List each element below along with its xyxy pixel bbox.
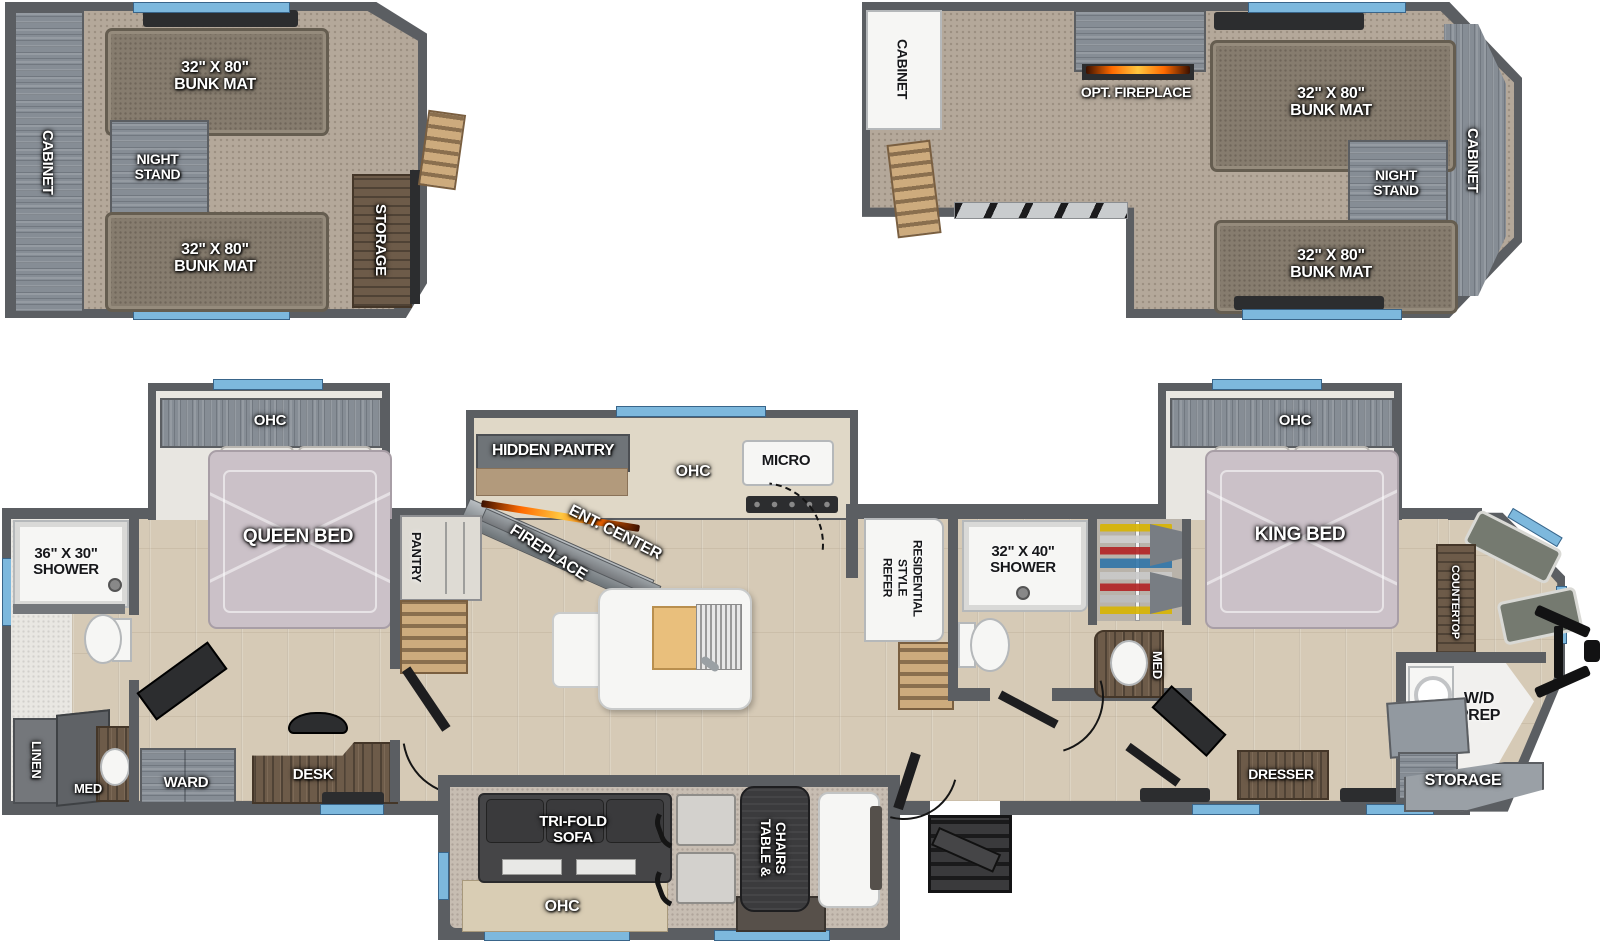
loft-right-fireplace-glow — [1086, 66, 1190, 74]
tri-fold-sofa-label: TRI-FOLD SOFA — [510, 808, 636, 852]
entry-steps — [928, 815, 1012, 893]
loft-right-opt-fireplace-label: OPT. FIREPLACE — [1046, 80, 1226, 104]
living-ohc-label: OHC — [512, 894, 612, 920]
bedroom2-window-1 — [1192, 804, 1260, 815]
loft-right-fireplace-cabinet — [1074, 10, 1206, 72]
wall-bath1-bed1 — [129, 519, 139, 615]
king-bed-label: KING BED — [1225, 520, 1375, 550]
loft-left-bunk-top-label: 32" X 80" BUNK MAT — [120, 42, 310, 112]
stairs-left — [400, 600, 468, 674]
bath1-med-label: MED — [62, 778, 114, 800]
closet-wall-left — [1088, 519, 1097, 625]
loft-right: CABINET CABINET OPT. FIREPLACE 32" X 80"… — [856, 2, 1536, 320]
wall-stub-refer — [846, 504, 858, 578]
loft-left-door-edge — [410, 170, 420, 304]
wd-counter — [1386, 697, 1470, 758]
loft-right-night-stand-label: NIGHT STAND — [1348, 150, 1444, 216]
queen-slide-window — [213, 379, 323, 390]
loft-left: CABINET 32" X 80" BUNK MAT NIGHT STAND 3… — [5, 2, 457, 320]
loft-right-window-bottom — [1242, 309, 1402, 320]
bedroom1-window — [320, 804, 384, 815]
wall-bath1-bed1-b — [129, 680, 139, 802]
dinette-bench-back — [870, 806, 882, 890]
kitchen-slide-window — [616, 406, 766, 417]
toilet1-bowl — [84, 614, 122, 664]
hidden-pantry-label: HIDDEN PANTRY — [468, 434, 638, 468]
desk-label: DESK — [268, 762, 358, 788]
wd-wall-top — [1396, 652, 1546, 663]
stairs-mid — [898, 642, 954, 710]
bath2-wall-bottom — [948, 688, 990, 701]
bath2-sink — [1110, 640, 1148, 686]
bed2-bench-1 — [1140, 788, 1210, 802]
queen-ohc-label: OHC — [210, 406, 330, 436]
loft-right-cabinet-right-label: CABINET — [1452, 90, 1492, 230]
bath2-med-label: MED — [1146, 642, 1168, 688]
wall-bed1-living — [390, 519, 400, 669]
loft-left-cabinet-label: CABINET — [29, 92, 65, 232]
king-slide-window — [1212, 379, 1322, 390]
loft-right-bunk-top-label: 32" X 80" BUNK MAT — [1236, 70, 1426, 136]
table-chairs-label: TABLE & CHAIRS — [748, 798, 798, 898]
pantry-label: PANTRY — [404, 520, 428, 594]
kitchen-ohc-label: OHC — [648, 458, 738, 486]
loft-right-window-top — [1248, 2, 1406, 13]
shower1-drain — [108, 578, 122, 592]
shower1-label: 36" X 30" SHOWER — [16, 536, 116, 588]
hitch — [1536, 596, 1600, 706]
loft-right-cabinet-left-label: CABINET — [882, 20, 922, 118]
island-cutting-board — [652, 606, 698, 670]
front-countertop-label: COUNTERTOP — [1442, 550, 1466, 654]
shower2-label: 32" X 40" SHOWER — [968, 534, 1078, 586]
loft-left-bunk-bottom-label: 32" X 80" BUNK MAT — [120, 224, 310, 294]
loft-right-upper-bunk-edge — [1214, 12, 1364, 30]
bath1-shelf — [13, 604, 125, 614]
loft-left-window-top — [133, 2, 290, 13]
queen-bed-label: QUEEN BED — [218, 522, 378, 552]
wall-bed1-living-b — [390, 740, 400, 802]
loft-right-bunk-bottom-label: 32" X 80" BUNK MAT — [1236, 232, 1426, 298]
front-storage-label: STORAGE — [1408, 768, 1518, 794]
closet-wall-right — [1182, 519, 1191, 625]
loft-right-lower-bunk-edge — [1234, 296, 1384, 310]
floorplan-canvas: CABINET 32" X 80" BUNK MAT NIGHT STAND 3… — [0, 0, 1600, 946]
linen-label: LINEN — [22, 726, 50, 794]
bath2-wall-left — [948, 519, 958, 701]
dresser-label: DRESSER — [1241, 762, 1321, 786]
loft-left-storage-label: STORAGE — [363, 182, 397, 298]
loft-right-railing — [954, 202, 1128, 219]
loft-left-night-stand-label: NIGHT STAND — [110, 132, 205, 202]
refer-label: RESIDENTIAL STYLE REFER — [872, 524, 932, 632]
bottom-slide-window-left — [438, 852, 449, 900]
shower2-drain — [1016, 586, 1030, 600]
ward-label: WARD — [144, 770, 228, 796]
microwave-label: MICRO — [742, 446, 830, 476]
king-ohc-label: OHC — [1235, 406, 1355, 436]
